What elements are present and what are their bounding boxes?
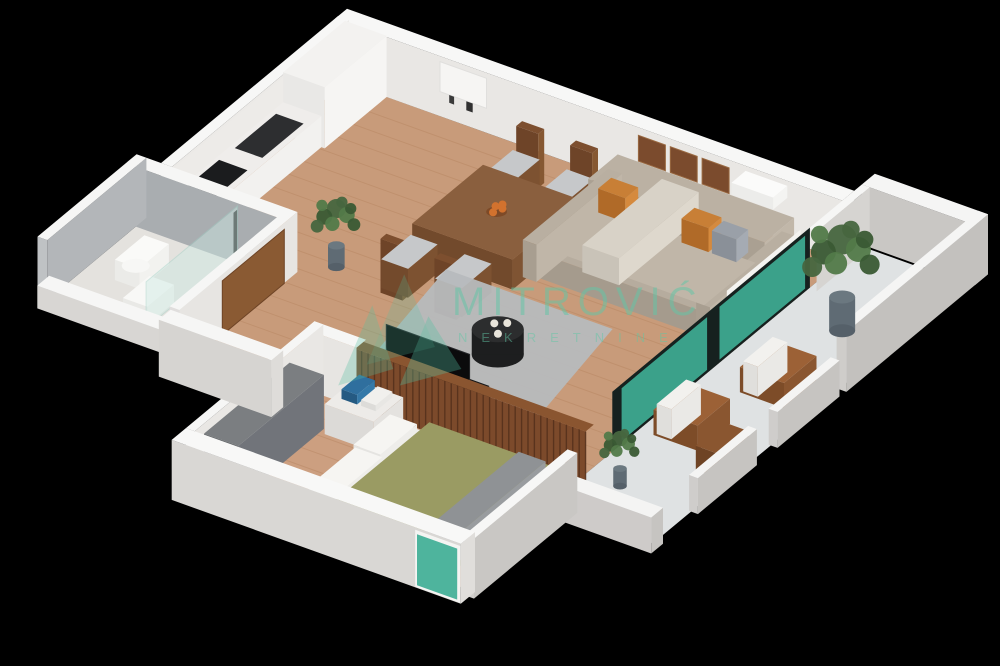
toilet-bowl bbox=[122, 259, 150, 273]
floorplan-render bbox=[0, 0, 1000, 666]
apartment-3d-floorplan: MITROVIĆ NEKRETNINE bbox=[0, 0, 1000, 666]
